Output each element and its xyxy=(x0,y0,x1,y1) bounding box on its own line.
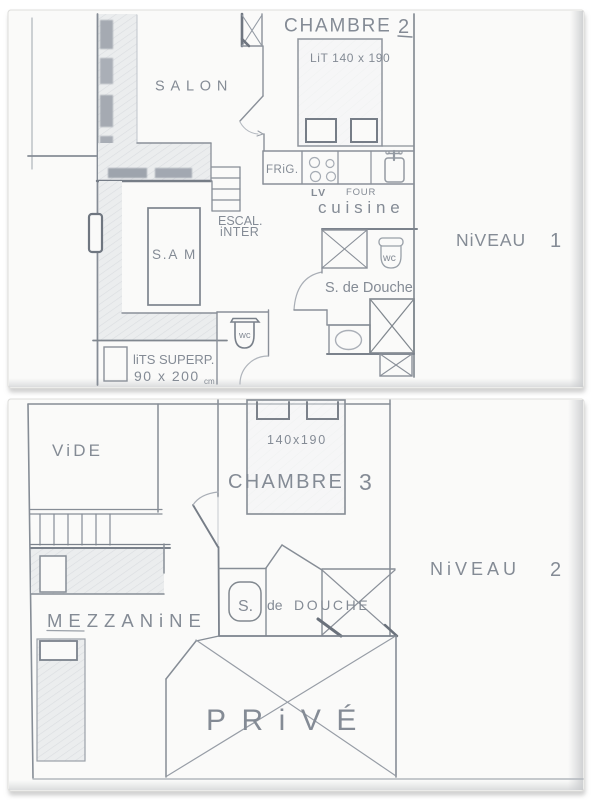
svg-text:140x190: 140x190 xyxy=(267,433,327,447)
svg-text:2: 2 xyxy=(550,559,561,581)
svg-text:3: 3 xyxy=(359,469,372,495)
svg-text:MEZZANiNE: MEZZANiNE xyxy=(47,610,207,631)
svg-text:ViDE: ViDE xyxy=(52,441,103,460)
svg-text:NiVEAU: NiVEAU xyxy=(456,230,526,250)
svg-text:wc: wc xyxy=(238,330,251,341)
svg-text:2: 2 xyxy=(398,16,409,38)
svg-text:FRiG.: FRiG. xyxy=(266,164,299,176)
svg-text:S.A M: S.A M xyxy=(152,247,197,262)
svg-text:de: de xyxy=(267,597,283,613)
svg-text:NiVEAU: NiVEAU xyxy=(430,559,520,579)
svg-text:FOUR: FOUR xyxy=(346,187,376,198)
svg-text:wc: wc xyxy=(382,252,396,264)
svg-text:LiT 140 x 190: LiT 140 x 190 xyxy=(310,51,390,65)
svg-text:1: 1 xyxy=(550,230,561,252)
svg-text:PRiVÉ: PRiVÉ xyxy=(206,704,372,737)
svg-text:iNTER: iNTER xyxy=(220,225,259,239)
svg-text:DOUCHE: DOUCHE xyxy=(294,597,370,613)
svg-text:SALON: SALON xyxy=(155,79,233,95)
svg-text:cuisine: cuisine xyxy=(318,198,405,217)
svg-text:liTS SUPERP.: liTS SUPERP. xyxy=(133,352,214,367)
svg-text:S. de Douche: S. de Douche xyxy=(325,280,413,296)
svg-text:CHAMBRE: CHAMBRE xyxy=(228,471,344,493)
svg-text:S.: S. xyxy=(238,598,253,615)
svg-text:CHAMBRE: CHAMBRE xyxy=(284,16,392,37)
svg-text:90 x 200: 90 x 200 xyxy=(134,368,200,384)
svg-text:cm: cm xyxy=(204,377,215,386)
